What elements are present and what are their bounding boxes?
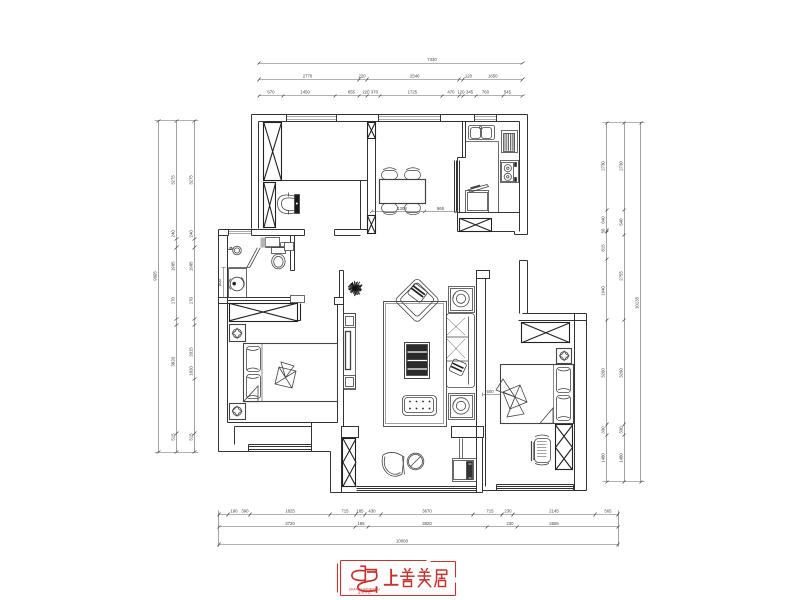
svg-text:545: 545 xyxy=(504,90,512,95)
svg-text:2730: 2730 xyxy=(601,161,606,171)
svg-text:470: 470 xyxy=(447,90,455,95)
svg-text:965: 965 xyxy=(437,206,445,211)
svg-text:10000: 10000 xyxy=(396,539,409,544)
svg-text:50: 50 xyxy=(601,228,606,233)
svg-text:190: 190 xyxy=(230,509,238,514)
svg-text:120: 120 xyxy=(465,74,473,79)
svg-text:1985: 1985 xyxy=(188,261,193,271)
svg-text:1820: 1820 xyxy=(188,366,193,376)
svg-text:2145: 2145 xyxy=(549,509,559,514)
svg-text:9605: 9605 xyxy=(152,271,157,281)
svg-text:7330: 7330 xyxy=(427,57,437,62)
svg-text:170: 170 xyxy=(170,297,175,305)
svg-text:345: 345 xyxy=(466,90,474,95)
svg-text:1650: 1650 xyxy=(488,74,498,79)
svg-text:185: 185 xyxy=(356,509,364,514)
svg-text:1480: 1480 xyxy=(618,453,623,463)
svg-text:640: 640 xyxy=(618,218,623,226)
svg-text:330: 330 xyxy=(618,426,623,434)
svg-text:230: 230 xyxy=(504,509,512,514)
svg-text:670: 670 xyxy=(267,90,275,95)
svg-text:3260: 3260 xyxy=(618,368,623,378)
svg-text:2546: 2546 xyxy=(410,74,420,79)
svg-text:1308: 1308 xyxy=(397,206,407,211)
svg-text:1450: 1450 xyxy=(300,90,310,95)
svg-text:370: 370 xyxy=(371,90,379,95)
svg-text:170: 170 xyxy=(188,297,193,305)
svg-text:230: 230 xyxy=(506,521,514,526)
svg-text:815: 815 xyxy=(601,244,606,252)
svg-text:2770: 2770 xyxy=(303,74,313,79)
svg-text:185: 185 xyxy=(357,521,365,526)
svg-text:2755: 2755 xyxy=(618,271,623,281)
svg-text:240: 240 xyxy=(170,230,175,238)
svg-text:240: 240 xyxy=(188,230,193,238)
svg-text:800: 800 xyxy=(217,278,222,286)
svg-text:1480: 1480 xyxy=(601,453,606,463)
svg-text:3275: 3275 xyxy=(170,175,175,185)
svg-text:500: 500 xyxy=(487,389,495,394)
svg-text:3720: 3720 xyxy=(285,521,295,526)
svg-text:3260: 3260 xyxy=(601,368,606,378)
svg-text:2015: 2015 xyxy=(188,347,193,357)
svg-text:390: 390 xyxy=(241,509,249,514)
svg-text:3820: 3820 xyxy=(422,521,432,526)
svg-text:120: 120 xyxy=(457,90,465,95)
svg-text:715: 715 xyxy=(486,509,494,514)
svg-text:1940: 1940 xyxy=(601,286,606,296)
svg-text:2655: 2655 xyxy=(549,521,559,526)
svg-text:3275: 3275 xyxy=(188,175,193,185)
svg-text:565: 565 xyxy=(604,509,612,514)
svg-text:515: 515 xyxy=(170,433,175,441)
svg-text:330: 330 xyxy=(601,426,606,434)
svg-text:515: 515 xyxy=(188,433,193,441)
svg-text:220: 220 xyxy=(359,74,367,79)
svg-text:· 美 好 人 居 ·: · 美 好 人 居 · xyxy=(356,591,372,595)
svg-text:640: 640 xyxy=(601,216,606,224)
svg-text:655: 655 xyxy=(348,90,356,95)
svg-text:1825: 1825 xyxy=(285,509,295,514)
svg-text:3670: 3670 xyxy=(422,509,432,514)
svg-text:715: 715 xyxy=(341,509,349,514)
svg-text:430: 430 xyxy=(368,509,376,514)
svg-text:220: 220 xyxy=(362,90,370,95)
svg-text:760: 760 xyxy=(482,90,490,95)
svg-text:3820: 3820 xyxy=(170,356,175,366)
svg-text:1985: 1985 xyxy=(170,261,175,271)
svg-text:10135: 10135 xyxy=(635,296,640,309)
svg-text:2730: 2730 xyxy=(618,161,623,171)
svg-text:1725: 1725 xyxy=(408,90,418,95)
